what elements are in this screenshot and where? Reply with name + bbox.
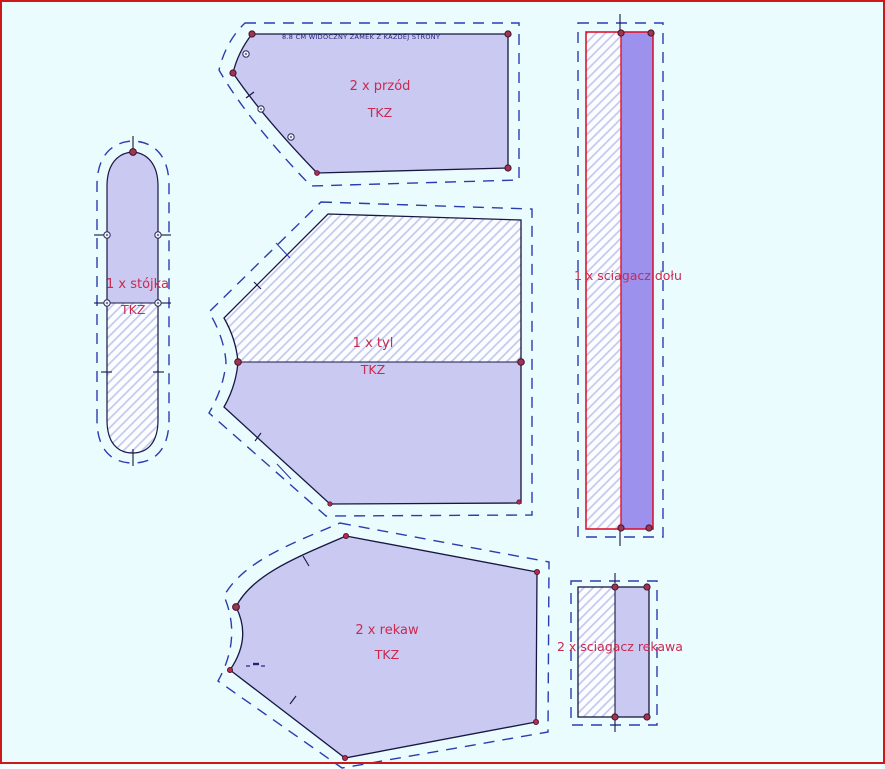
sleeve-ribbing-label: 2 x sciagacz rekawa (557, 640, 683, 654)
point-marker[interactable] (315, 171, 320, 176)
point-marker[interactable] (644, 584, 650, 590)
collar-stand-label: 1 x stójka (106, 278, 169, 292)
front-zipper-note: 8.8 CM WIDOCZNY ZAMEK Z KAŻDEJ STRONY (282, 33, 440, 41)
notch-dot (157, 234, 159, 236)
point-marker[interactable] (518, 359, 525, 366)
point-marker[interactable] (644, 714, 650, 720)
point-marker[interactable] (233, 604, 240, 611)
point-marker[interactable] (328, 502, 332, 506)
notch-dot (106, 234, 108, 236)
point-marker[interactable] (612, 714, 618, 720)
point-marker[interactable] (227, 667, 232, 672)
point-marker[interactable] (130, 149, 137, 156)
point-marker[interactable] (343, 533, 348, 538)
point-marker[interactable] (249, 31, 255, 37)
back-piece-material: TKZ (328, 363, 418, 377)
point-marker[interactable] (235, 359, 242, 366)
notch-dot (157, 302, 159, 304)
front-piece-material: TKZ (320, 106, 440, 120)
point-marker[interactable] (648, 30, 654, 36)
sleeve-piece-material: TKZ (337, 648, 437, 662)
point-marker[interactable] (230, 70, 236, 76)
pattern-drawing (0, 0, 885, 769)
collar-stand-material: TKZ (121, 303, 145, 317)
front-piece-label: 2 x przód (320, 80, 440, 94)
point-marker[interactable] (618, 30, 624, 36)
point-marker[interactable] (533, 719, 538, 724)
point-marker[interactable] (505, 165, 511, 171)
back-piece-label: 1 x tyl (328, 337, 418, 351)
notch-dot (290, 136, 292, 138)
notch-dot (106, 302, 108, 304)
back-piece (209, 202, 532, 516)
sleeve-piece (218, 523, 549, 768)
point-marker[interactable] (612, 584, 618, 590)
collar-stand-piece (94, 136, 171, 466)
notch-dot (245, 53, 247, 55)
point-marker[interactable] (534, 569, 539, 574)
point-marker[interactable] (618, 525, 624, 531)
point-marker[interactable] (517, 500, 521, 504)
back-solid-part (224, 362, 521, 504)
notch-dot (260, 108, 262, 110)
point-marker[interactable] (505, 31, 511, 37)
point-marker[interactable] (342, 755, 347, 760)
point-marker[interactable] (646, 525, 652, 531)
pattern-canvas: 8.8 CM WIDOCZNY ZAMEK Z KAŻDEJ STRONY 2 … (0, 0, 885, 769)
sleeve-piece-label: 2 x rekaw (337, 624, 437, 638)
front-piece-shape[interactable] (233, 34, 508, 173)
hem-ribbing-label: 1 x sciagacz dołu (574, 269, 682, 283)
